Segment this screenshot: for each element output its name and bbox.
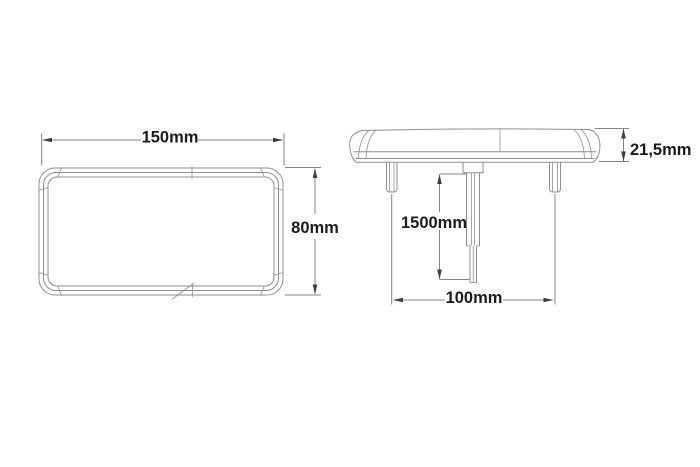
mounting-stud-left xyxy=(387,163,398,192)
dimension-height: 80mm xyxy=(285,168,339,296)
dimension-stud-spacing-label: 100mm xyxy=(446,289,503,307)
cable-wires xyxy=(470,246,477,283)
dimension-width: 150mm xyxy=(42,129,284,166)
dimension-width-label: 150mm xyxy=(142,129,199,147)
dimension-thickness: 21,5mm xyxy=(595,129,691,162)
dimension-cable-length-label: 1500mm xyxy=(401,214,467,232)
lamp-outer-outline xyxy=(39,168,283,295)
housing-end-curve-left-2 xyxy=(366,130,376,158)
drawing-page: 150mm 80mm 21,5mm 1500mm 100m xyxy=(0,0,700,467)
front-view xyxy=(39,167,283,300)
lamp-mid-outline xyxy=(44,173,279,291)
lamp-inner-outline xyxy=(48,177,274,286)
cable-sleeve xyxy=(467,173,480,246)
housing-profile xyxy=(350,129,600,162)
mounting-stud-right xyxy=(550,163,561,192)
housing-end-curve-left-1 xyxy=(359,130,370,158)
cable-grommet xyxy=(463,163,483,173)
dimension-cable-length: 1500mm xyxy=(401,174,470,280)
technical-drawing-canvas: 150mm 80mm 21,5mm 1500mm 100m xyxy=(0,0,700,467)
housing-end-curve-right-2 xyxy=(574,130,585,159)
dimension-thickness-label: 21,5mm xyxy=(630,141,691,159)
corner-detail-marks xyxy=(39,168,283,295)
side-view xyxy=(350,129,600,283)
dimension-height-label: 80mm xyxy=(291,219,339,237)
